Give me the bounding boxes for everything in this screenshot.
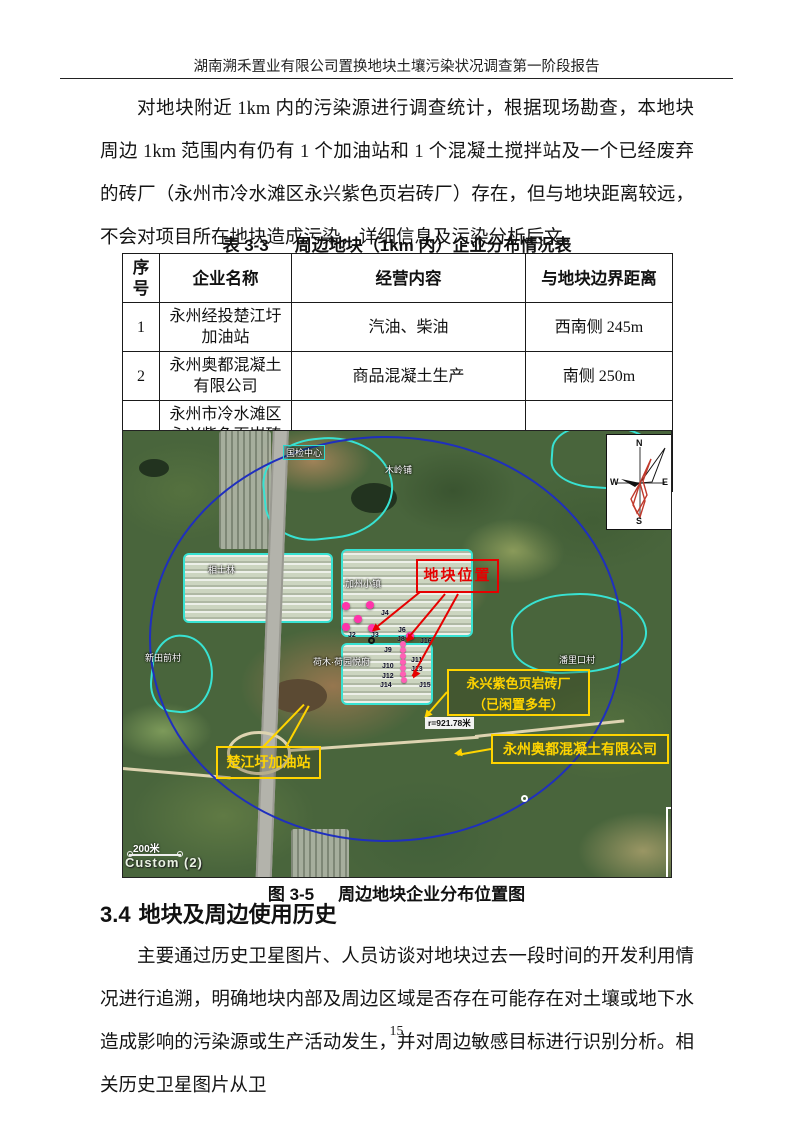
map-pin <box>342 602 350 610</box>
place-label: 潘里口村 <box>559 653 595 666</box>
sample-point-label: J12 <box>382 673 394 680</box>
figure-title: 周边地块企业分布位置图 <box>338 885 525 904</box>
map-source-label: Custom (2) <box>125 855 203 870</box>
cell-no: 1 <box>123 303 160 352</box>
map-pin <box>366 601 374 609</box>
sample-point-label: J2 <box>348 632 356 639</box>
sample-point-label: J6 <box>398 627 406 634</box>
map-pin <box>401 677 407 683</box>
cell-business: 商品混凝土生产 <box>292 352 526 401</box>
sample-point-label: J10 <box>382 663 394 670</box>
col-header-business: 经营内容 <box>292 254 526 303</box>
place-label: 加州小镇 <box>345 577 381 590</box>
compass-west: W <box>610 477 619 487</box>
table-row: 1 永州经投楚江圩加油站 汽油、柴油 西南侧 245m <box>123 303 673 352</box>
cell-name: 永州奥都混凝土有限公司 <box>160 352 292 401</box>
page-header-title: 湖南溯禾置业有限公司置换地块土壤污染状况调查第一阶段报告 <box>60 55 733 76</box>
cell-business: 汽油、柴油 <box>292 303 526 352</box>
compass-rose: N E S W <box>606 434 672 530</box>
map-pin <box>354 615 362 623</box>
place-label: 荷木·荷园悦府 <box>313 655 370 668</box>
concrete-company-label: 永州奥都混凝土有限公司 <box>491 734 669 764</box>
table-row: 2 永州奥都混凝土有限公司 商品混凝土生产 南侧 250m <box>123 352 673 401</box>
col-header-name: 企业名称 <box>160 254 292 303</box>
arrowhead <box>453 748 462 757</box>
map-pin <box>342 623 350 631</box>
sample-point-label: J15 <box>419 682 431 689</box>
legend-corner-box <box>666 807 672 878</box>
place-label: 相士林 <box>208 563 235 576</box>
circle-marker <box>521 795 528 802</box>
pond <box>139 459 169 477</box>
compass-east: E <box>662 477 668 487</box>
place-label: 新田前村 <box>145 651 181 664</box>
document-page: 湖南溯禾置业有限公司置换地块土壤污染状况调查第一阶段报告 对地块附近 1km 内… <box>0 0 793 1122</box>
radius-label: r=921.78米 <box>425 717 474 729</box>
table-header-row: 序号 企业名称 经营内容 与地块边界距离 <box>123 254 673 303</box>
compass-north: N <box>636 438 643 448</box>
site-location-label: 地块位置 <box>416 559 499 593</box>
header-rule <box>60 78 733 79</box>
one-km-radius-circle <box>149 436 623 842</box>
sample-point-label: J9 <box>384 647 392 654</box>
page-number: 15 <box>0 1024 793 1040</box>
section-heading: 3.4地块及周边使用历史 <box>100 897 337 929</box>
place-label: 木岭铺 <box>385 463 412 476</box>
section-title: 地块及周边使用历史 <box>139 902 337 927</box>
cell-no: 2 <box>123 352 160 401</box>
cell-distance: 南侧 250m <box>526 352 673 401</box>
compass-south: S <box>636 516 642 526</box>
cell-distance: 西南侧 245m <box>526 303 673 352</box>
gas-station-label: 楚江圩加油站 <box>216 746 321 779</box>
col-header-no: 序号 <box>123 254 160 303</box>
cell-name: 永州经投楚江圩加油站 <box>160 303 292 352</box>
paragraph-history-intro: 主要通过历史卫星图片、人员访谈对地块过去一段时间的开发利用情况进行追溯，明确地块… <box>100 936 694 1108</box>
brick-factory-label: 永兴紫色页岩砖厂 （已闲置多年） <box>447 669 590 716</box>
col-header-distance: 与地块边界距离 <box>526 254 673 303</box>
place-label: 国检中心 <box>283 445 325 460</box>
section-number: 3.4 <box>100 902 131 927</box>
sample-point-label: J14 <box>380 682 392 689</box>
satellite-map-figure: 国检中心 木岭铺 相士林 加州小镇 新田前村 荷木·荷园悦府 潘里口村 J4 J… <box>122 430 672 878</box>
